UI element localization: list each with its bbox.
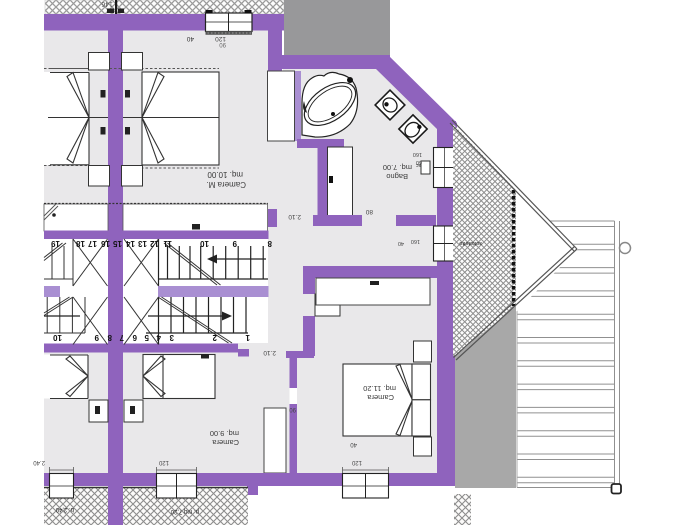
svg-text:2.10: 2.10 xyxy=(288,213,301,220)
svg-text:14: 14 xyxy=(126,239,135,248)
svg-text:mq. 9.00: mq. 9.00 xyxy=(210,429,239,438)
svg-text:6: 6 xyxy=(132,333,137,342)
svg-text:16: 16 xyxy=(101,239,110,248)
svg-text:160: 160 xyxy=(411,238,420,244)
svg-text:160: 160 xyxy=(413,151,422,157)
svg-text:mq. 10.00: mq. 10.00 xyxy=(207,170,243,179)
svg-text:8: 8 xyxy=(267,239,272,248)
svg-text:15: 15 xyxy=(113,239,122,248)
svg-text:60: 60 xyxy=(416,159,422,165)
svg-text:18: 18 xyxy=(76,239,85,248)
svg-text:3: 3 xyxy=(169,333,174,342)
svg-text:8: 8 xyxy=(107,333,112,342)
svg-text:9: 9 xyxy=(94,333,99,342)
svg-text:11: 11 xyxy=(163,239,172,248)
svg-text:12: 12 xyxy=(150,239,159,248)
svg-text:4: 4 xyxy=(156,333,161,342)
svg-text:2.40: 2.40 xyxy=(33,459,45,465)
svg-text:Bagno: Bagno xyxy=(386,172,408,181)
svg-text:120: 120 xyxy=(158,459,169,465)
svg-text:19: 19 xyxy=(51,239,60,248)
svg-text:80: 80 xyxy=(365,208,373,215)
svg-text:Camera M.: Camera M. xyxy=(206,180,246,189)
svg-text:40: 40 xyxy=(398,240,404,246)
svg-text:120: 120 xyxy=(215,35,226,42)
svg-text:mq. 7.00: mq. 7.00 xyxy=(383,163,412,172)
svg-text:90: 90 xyxy=(219,41,226,47)
svg-text:9: 9 xyxy=(232,239,237,248)
svg-text:10: 10 xyxy=(200,239,209,248)
svg-text:7: 7 xyxy=(119,333,124,342)
svg-text:10: 10 xyxy=(53,333,62,342)
svg-text:2.10: 2.10 xyxy=(263,349,276,356)
svg-text:13: 13 xyxy=(138,239,147,248)
svg-text:2: 2 xyxy=(212,333,217,342)
svg-text:mq. 11.20: mq. 11.20 xyxy=(363,384,396,393)
svg-text:Camera: Camera xyxy=(366,393,394,402)
svg-text:17: 17 xyxy=(88,239,97,248)
svg-text:Camera: Camera xyxy=(211,438,239,447)
svg-text:40: 40 xyxy=(350,441,357,447)
svg-text:1: 1 xyxy=(245,333,250,342)
svg-text:5: 5 xyxy=(144,333,149,342)
svg-text:sottotetto: sottotetto xyxy=(459,240,482,246)
svg-text:b. 2,40: b. 2,40 xyxy=(55,506,74,512)
svg-text:40: 40 xyxy=(186,35,194,42)
svg-text:p. mq 7,20: p. mq 7,20 xyxy=(170,508,199,514)
svg-text:90: 90 xyxy=(289,406,296,412)
svg-text:146: 146 xyxy=(101,0,113,7)
svg-text:120: 120 xyxy=(351,459,362,465)
